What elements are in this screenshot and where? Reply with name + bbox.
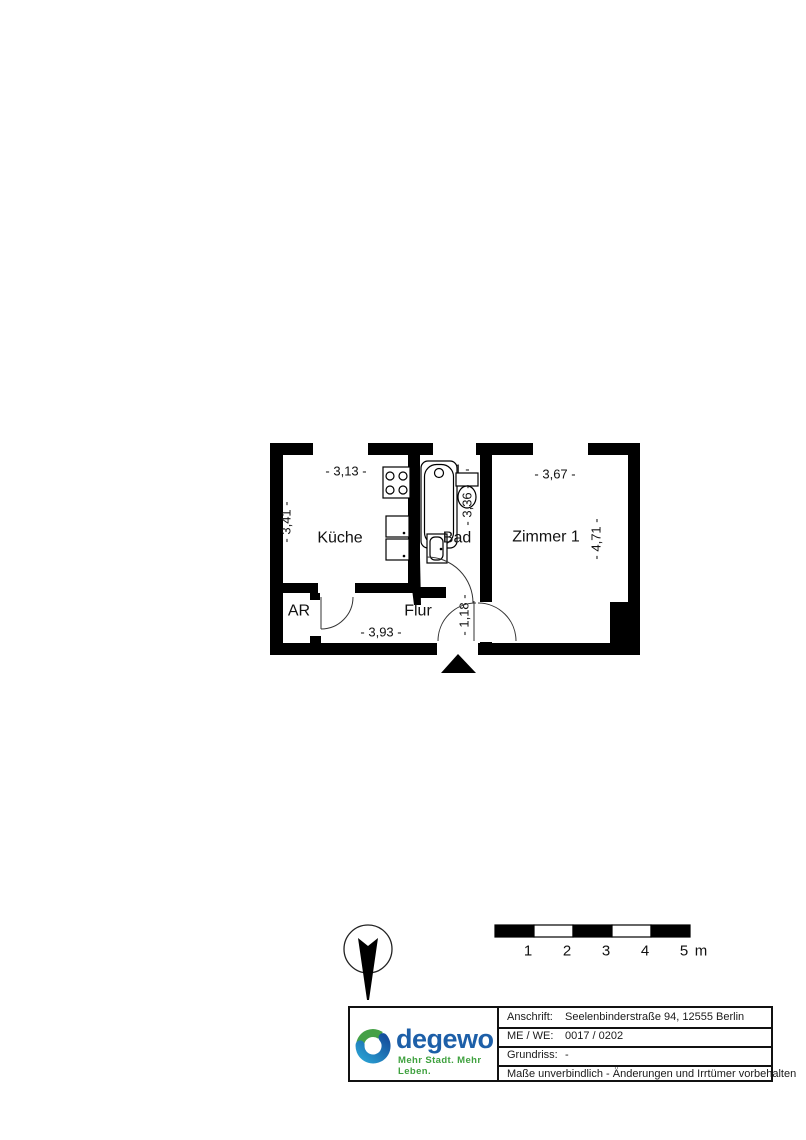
scale-tick-label: 4 bbox=[641, 943, 649, 960]
dim-zimmer1-width: - 3,67 - bbox=[534, 467, 575, 482]
scale-tick-label: 1 bbox=[524, 943, 532, 960]
degewo-wordmark: degewo bbox=[396, 1024, 494, 1054]
dim-bad-height: - 3,36 - bbox=[460, 484, 475, 525]
room-label-zimmer1: Zimmer 1 bbox=[512, 529, 580, 546]
dim-zimmer1-height: - 4,71 - bbox=[589, 518, 604, 559]
floorplan-drawing: - 1,51 - bbox=[0, 0, 806, 1140]
scale-unit-label: m bbox=[695, 943, 708, 960]
dim-kueche-width: - 3,13 - bbox=[325, 464, 366, 479]
scale-tick-label: 3 bbox=[602, 943, 610, 960]
room-label-kueche: Küche bbox=[317, 530, 362, 547]
ar-door-jamb bbox=[310, 593, 320, 600]
room-zimmer1-floor bbox=[492, 455, 628, 643]
room-label-ar: AR bbox=[288, 603, 310, 620]
scale-bar: 1 2 3 4 5 m bbox=[495, 925, 707, 960]
degewo-logo: degewo Mehr Stadt. Mehr Leben. bbox=[350, 1008, 497, 1080]
room-label-bad: Bad bbox=[443, 530, 471, 547]
field-value-grundriss: - bbox=[565, 1046, 569, 1065]
floorplan-page: - 1,51 - bbox=[0, 0, 806, 1140]
dim-flur-width: - 3,93 - bbox=[360, 625, 401, 640]
field-label-grundriss: Grundriss: bbox=[507, 1046, 567, 1065]
north-arrow-icon bbox=[344, 925, 392, 1000]
window-opening-kueche bbox=[313, 443, 368, 455]
door-opening-entrance bbox=[437, 643, 478, 655]
disclaimer-text: Maße unverbindlich - Änderungen und Irrt… bbox=[507, 1065, 796, 1084]
entrance-arrow-icon bbox=[441, 654, 476, 673]
field-label-anschrift: Anschrift: bbox=[507, 1008, 567, 1027]
bad-door-jamb bbox=[420, 587, 446, 598]
stove-icon bbox=[383, 467, 410, 498]
dim-kueche-height: - 3,41 - bbox=[279, 501, 294, 542]
window-opening-bad bbox=[433, 443, 476, 455]
scale-tick-label: 2 bbox=[563, 943, 571, 960]
door-opening-zimmer1 bbox=[480, 602, 492, 642]
zimmer1-pillar bbox=[610, 602, 628, 643]
degewo-tagline: Mehr Stadt. Mehr Leben. bbox=[398, 1055, 497, 1077]
title-block: degewo Mehr Stadt. Mehr Leben. Anschrift… bbox=[348, 1006, 773, 1082]
field-label-me-we: ME / WE: bbox=[507, 1027, 567, 1046]
dim-entry-height: - 1,18 - bbox=[457, 594, 472, 635]
title-block-divider bbox=[497, 1008, 499, 1080]
door-opening-kueche bbox=[318, 583, 355, 593]
degewo-swirl-icon bbox=[354, 1021, 394, 1067]
room-label-flur: Flur bbox=[404, 603, 432, 620]
ar-door-jamb bbox=[310, 636, 321, 643]
field-value-anschrift: Seelenbinderstraße 94, 12555 Berlin bbox=[565, 1008, 744, 1027]
field-value-me-we: 0017 / 0202 bbox=[565, 1027, 623, 1046]
scale-tick-label: 5 bbox=[680, 943, 688, 960]
window-opening-zimmer1 bbox=[533, 443, 588, 455]
